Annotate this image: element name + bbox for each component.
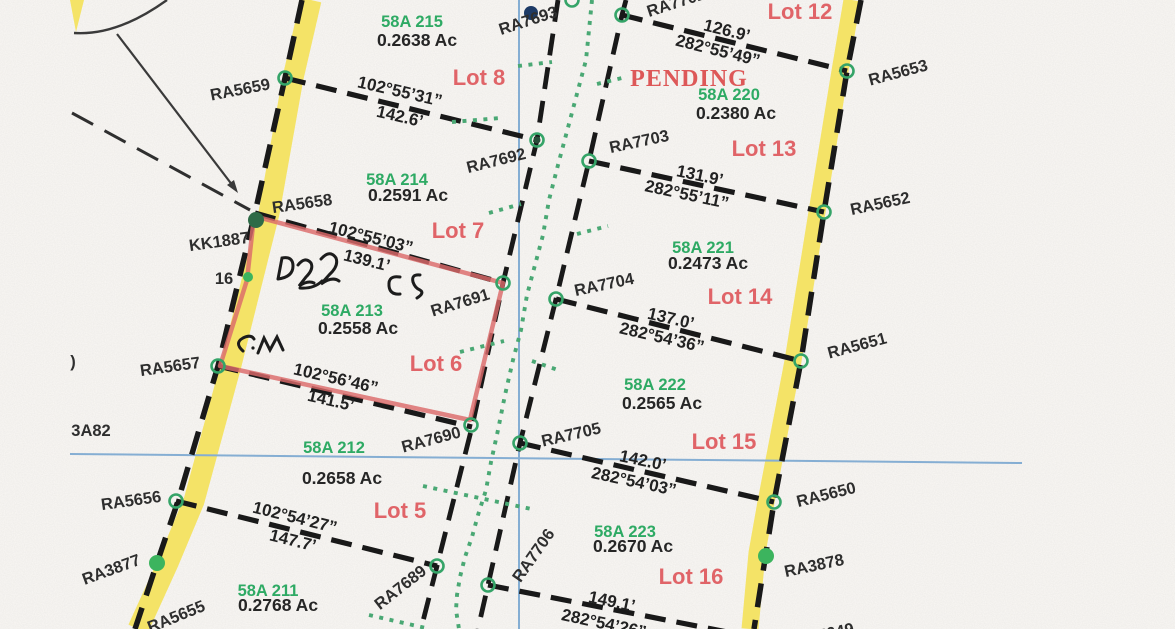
svg-text:0.2638 Ac: 0.2638 Ac xyxy=(377,30,457,50)
svg-text:Lot 14: Lot 14 xyxy=(708,284,774,309)
svg-text:58A 212: 58A 212 xyxy=(303,439,365,457)
svg-text:Lot 8: Lot 8 xyxy=(453,65,506,90)
svg-text:0.2658 Ac: 0.2658 Ac xyxy=(302,468,382,488)
svg-text:): ) xyxy=(70,353,76,371)
svg-text:0.2768 Ac: 0.2768 Ac xyxy=(238,595,318,615)
svg-text:0.2473 Ac: 0.2473 Ac xyxy=(668,253,748,273)
svg-text:0.2558 Ac: 0.2558 Ac xyxy=(318,318,398,338)
svg-text:16: 16 xyxy=(215,270,233,288)
svg-text:Lot 16: Lot 16 xyxy=(659,564,724,589)
svg-text:58A 222: 58A 222 xyxy=(624,376,686,394)
svg-text:58A 220: 58A 220 xyxy=(698,86,760,104)
svg-text:Lot 15: Lot 15 xyxy=(692,429,757,454)
svg-text:Lot 6: Lot 6 xyxy=(410,351,463,376)
svg-text:58A 215: 58A 215 xyxy=(381,13,443,31)
svg-text:0.2670 Ac: 0.2670 Ac xyxy=(593,536,673,556)
svg-text:0.2591 Ac: 0.2591 Ac xyxy=(368,185,448,205)
svg-text:Lot 7: Lot 7 xyxy=(432,218,485,243)
svg-text:Lot 5: Lot 5 xyxy=(374,498,427,523)
svg-text:3A82: 3A82 xyxy=(71,422,110,440)
svg-text:Lot 12: Lot 12 xyxy=(768,0,833,24)
svg-text:Lot 13: Lot 13 xyxy=(732,136,797,161)
svg-text:0.2565 Ac: 0.2565 Ac xyxy=(622,393,702,413)
svg-text:0.2380 Ac: 0.2380 Ac xyxy=(696,103,776,123)
